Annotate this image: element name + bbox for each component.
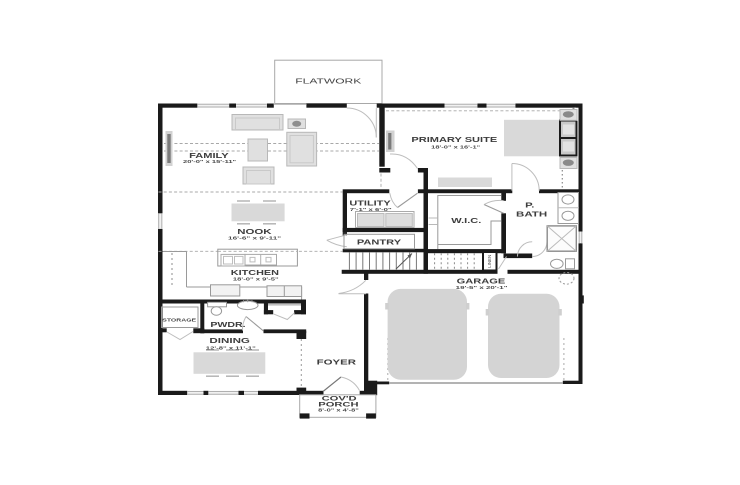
svg-text:19'-5" x 20'-1": 19'-5" x 20'-1" [456, 285, 508, 291]
svg-text:PORCH: PORCH [318, 402, 358, 408]
svg-text:LINEN: LINEN [487, 255, 492, 268]
svg-text:16'-6" x 9'-11": 16'-6" x 9'-11" [228, 236, 281, 242]
svg-text:7'-1" x 6'-0": 7'-1" x 6'-0" [350, 207, 392, 213]
svg-text:8'-0" x 4'-8": 8'-0" x 4'-8" [318, 408, 359, 414]
svg-text:PWDR.: PWDR. [210, 322, 245, 329]
svg-text:GARAGE: GARAGE [457, 279, 506, 286]
svg-text:12'-8" x 11'-1": 12'-8" x 11'-1" [206, 345, 256, 351]
svg-text:NOOK: NOOK [237, 229, 271, 236]
svg-text:PANTRY: PANTRY [357, 240, 402, 247]
svg-text:UTILITY: UTILITY [349, 200, 391, 207]
svg-text:FLATWORK: FLATWORK [295, 77, 361, 86]
svg-text:P.: P. [525, 202, 534, 209]
svg-text:20'-0" x 15'-11": 20'-0" x 15'-11" [183, 159, 236, 165]
svg-text:W.I.C.: W.I.C. [451, 218, 481, 225]
svg-text:DINING: DINING [209, 338, 250, 345]
svg-text:18'-0" x 9'-5": 18'-0" x 9'-5" [233, 276, 279, 282]
svg-text:FOYER: FOYER [317, 359, 356, 366]
svg-text:PRIMARY SUITE: PRIMARY SUITE [411, 137, 497, 144]
svg-text:BATH: BATH [516, 212, 547, 219]
svg-text:KITCHEN: KITCHEN [231, 270, 279, 277]
svg-text:STORAGE: STORAGE [162, 318, 197, 324]
svg-text:18'-0" x 16'-1": 18'-0" x 16'-1" [431, 145, 480, 151]
